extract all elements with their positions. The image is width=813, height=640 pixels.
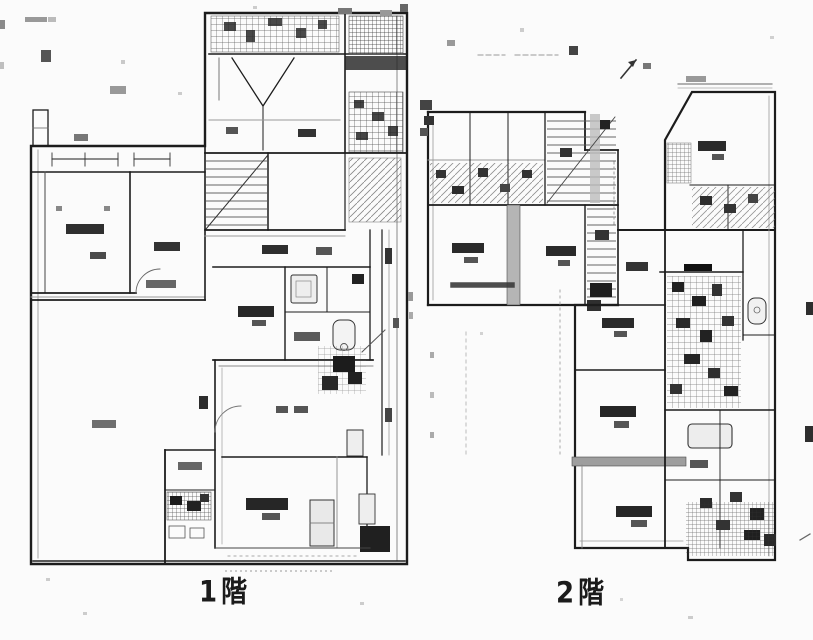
floor-1-label: 1階 — [199, 578, 251, 607]
floor-1-drawing — [31, 13, 407, 564]
north-arrow-icon — [621, 60, 651, 78]
floor-2-drawing — [408, 40, 813, 560]
floorplan-scan-page: 1階 2階 — [0, 0, 813, 640]
floor-2-label: 2階 — [556, 579, 608, 608]
floor-2-left-block — [420, 100, 648, 311]
floor-1-lower-rooms — [92, 346, 390, 564]
floor-1-left-wing — [31, 86, 205, 300]
floor-1-top-block — [205, 13, 407, 153]
floor-plans-drawing — [0, 0, 813, 640]
